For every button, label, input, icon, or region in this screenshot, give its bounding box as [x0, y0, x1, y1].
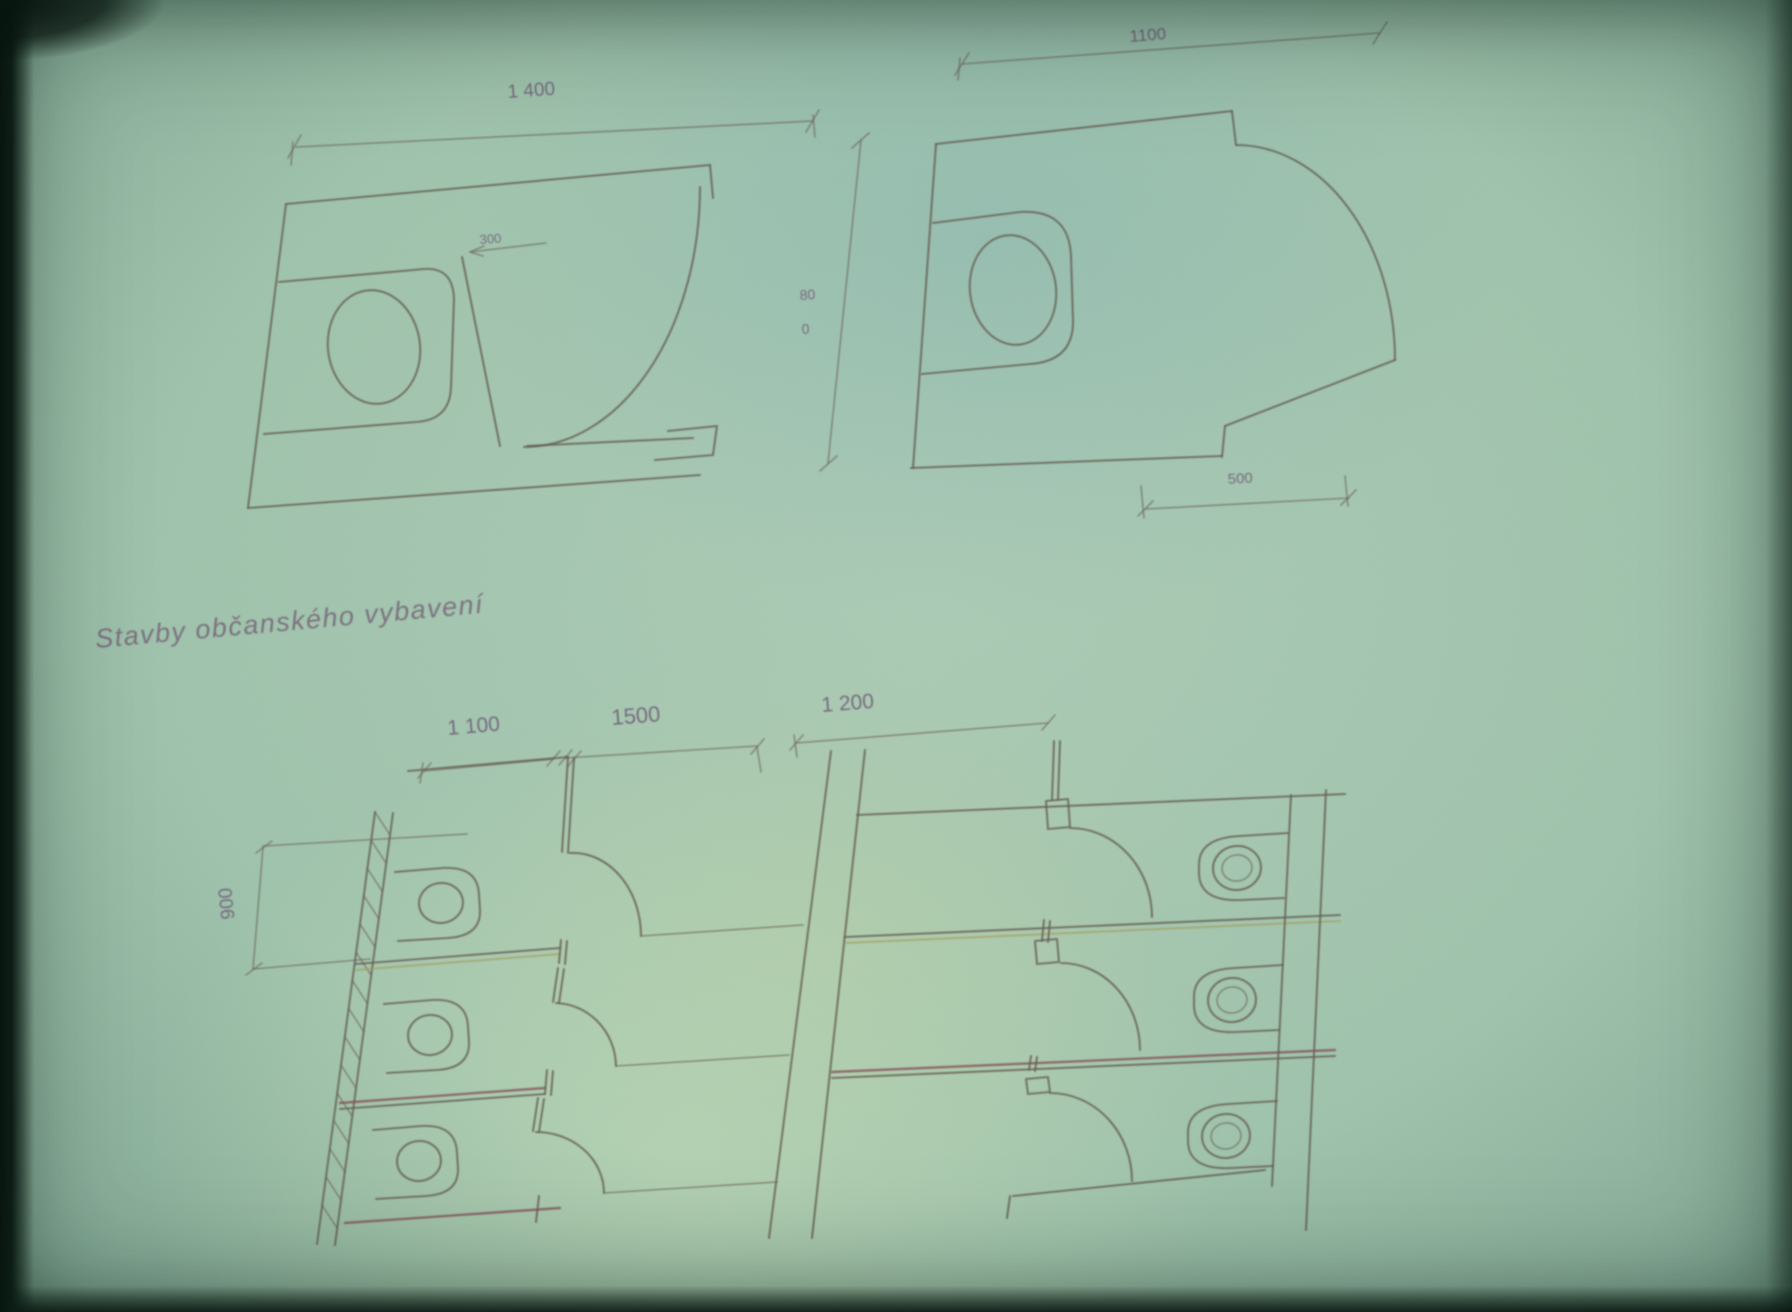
photo-grain-overlay [0, 0, 1792, 1312]
photo-edge-left-black-band [0, 0, 34, 1312]
photo-corner-dark-blob [0, 0, 240, 90]
projected-blueprint-photo: 1 400 1100 300 80 0 500 1 100 1500 1 200… [0, 0, 1792, 1312]
photo-edge-bottom-shadow [0, 1286, 1792, 1312]
photo-edge-right-shadow [1766, 0, 1792, 1312]
cad-drawing-layer: 1 400 1100 300 80 0 500 1 100 1500 1 200… [0, 0, 1792, 1312]
